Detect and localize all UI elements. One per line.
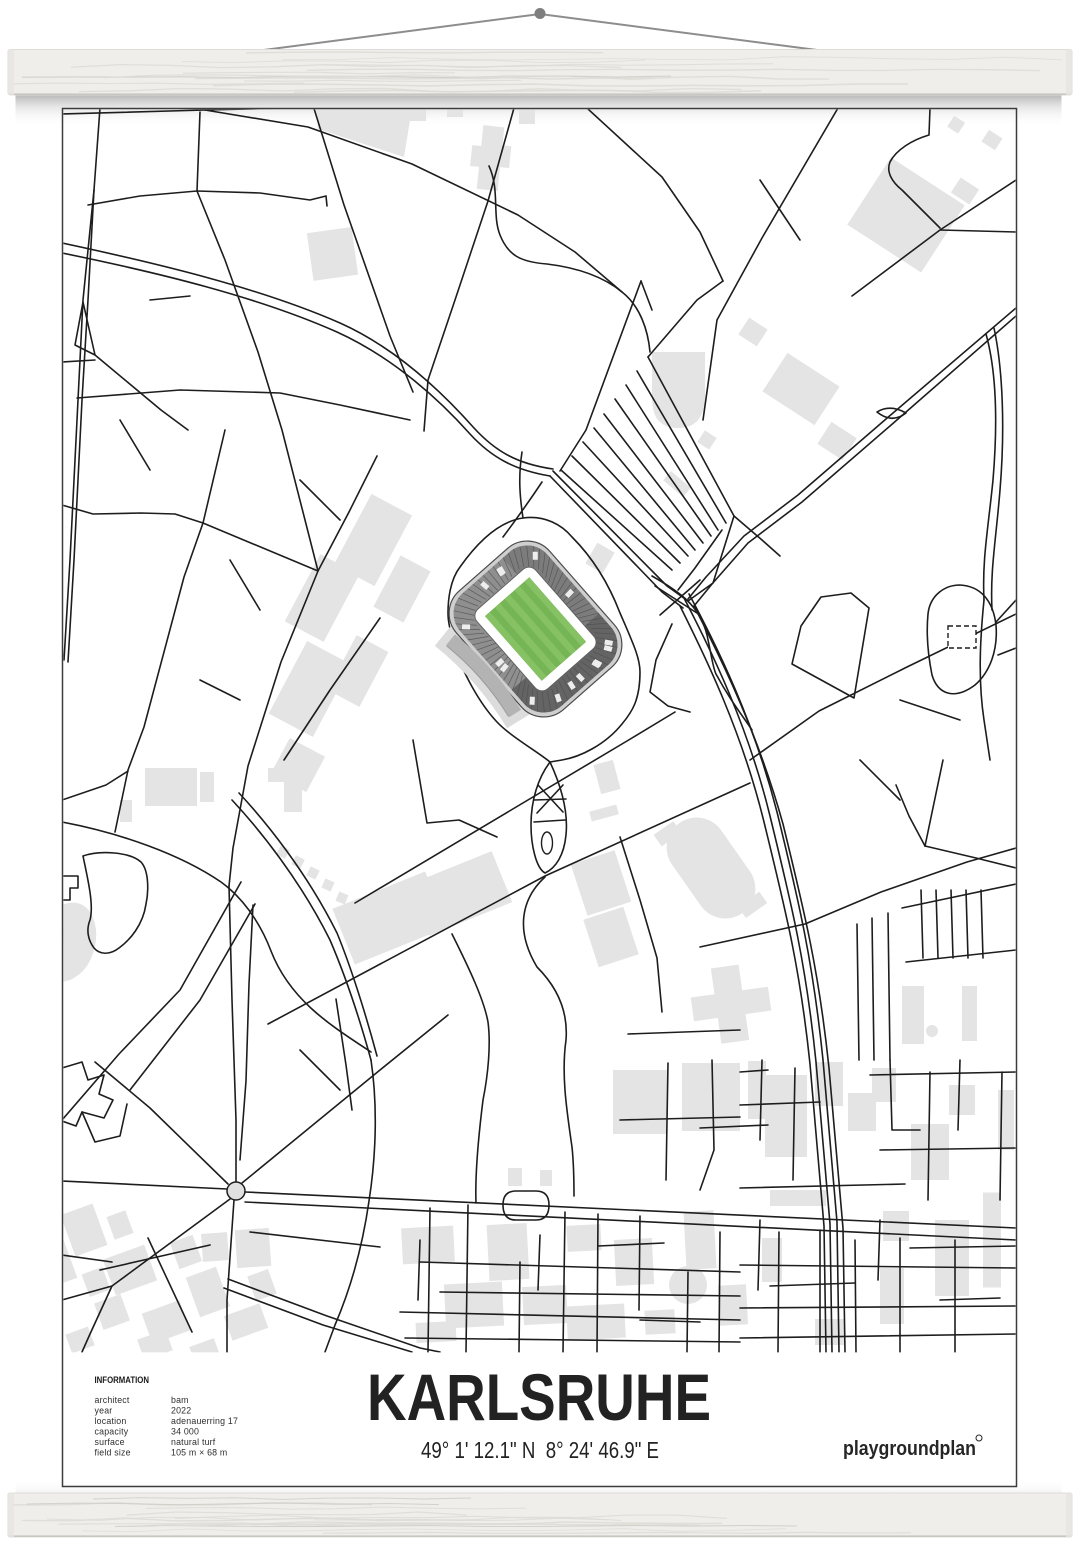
svg-text:INFORMATION: INFORMATION: [95, 1375, 150, 1386]
svg-text:architect: architect: [95, 1395, 130, 1405]
svg-text:bam: bam: [171, 1395, 189, 1405]
svg-text:105 m × 68 m: 105 m × 68 m: [171, 1448, 227, 1458]
svg-text:surface: surface: [95, 1437, 125, 1447]
svg-text:2022: 2022: [171, 1406, 191, 1416]
svg-text:adenauerring 17: adenauerring 17: [171, 1416, 238, 1426]
svg-text:KARLSRUHE: KARLSRUHE: [367, 1361, 711, 1434]
svg-text:49° 1' 12.1" N 8° 24' 46.9" E: 49° 1' 12.1" N 8° 24' 46.9" E: [421, 1437, 659, 1463]
svg-text:field size: field size: [95, 1448, 131, 1458]
svg-text:capacity: capacity: [95, 1427, 129, 1437]
svg-text:location: location: [95, 1416, 127, 1426]
svg-text:playgroundplan: playgroundplan: [843, 1438, 976, 1460]
svg-text:natural turf: natural turf: [171, 1437, 216, 1447]
svg-text:34 000: 34 000: [171, 1427, 199, 1437]
svg-text:year: year: [95, 1406, 113, 1416]
